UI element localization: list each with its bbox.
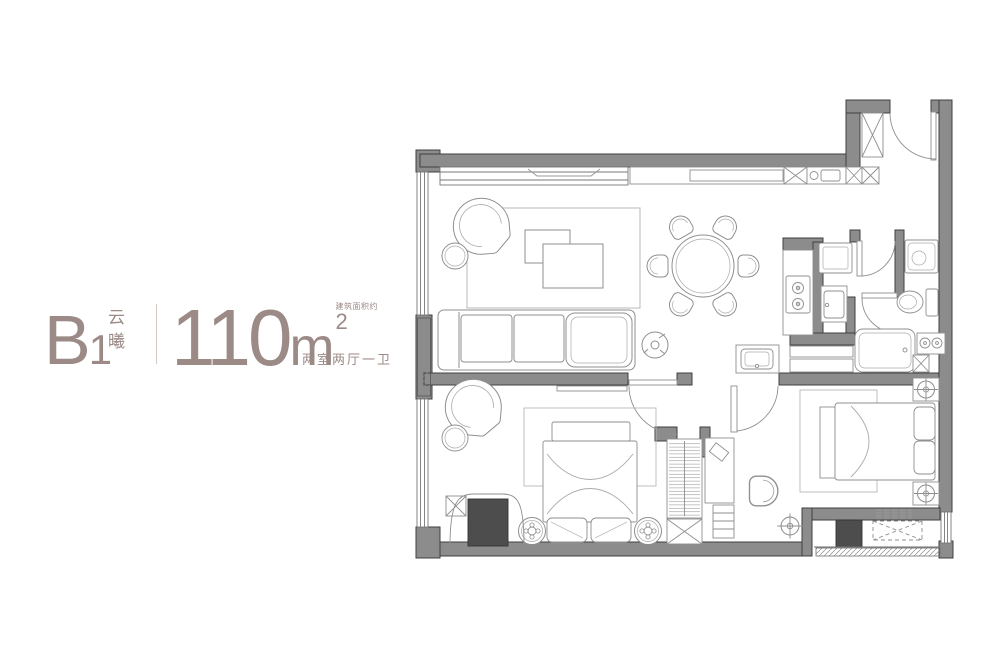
floor-lamp [642,332,668,358]
dining-area [647,212,759,320]
side-table [442,243,468,269]
living-room [438,187,668,370]
equipment-box [836,520,862,547]
corner-floor-lamp [777,513,802,538]
floor-plan [0,0,1000,666]
bed-bench [552,422,630,441]
dining-table [672,235,734,297]
sofa [438,310,635,370]
bedroom-side-table [442,425,468,451]
nightstand-round [635,518,662,545]
column-hatch [418,318,431,396]
nightstand [913,482,939,506]
pillow [914,407,935,440]
laundry-sink [917,333,945,354]
bed2-bench [820,407,835,478]
toilet [897,289,938,316]
pillow [914,441,935,474]
desk-chair [750,476,778,506]
floorplan-page: B1 云 曦 110m建筑面积约2 两室两厅一卫 [0,0,1000,666]
base-cabinet-1 [790,346,853,357]
base-cabinet-2 [790,359,853,372]
ac-unit [873,521,922,540]
balcony [814,520,940,556]
nightstand [913,378,939,402]
coffee-table-2 [543,244,603,288]
tv-console [468,499,508,546]
entry-cabinets [630,113,883,184]
hall-closet [667,439,702,544]
master-bedroom [434,368,662,546]
master-bed [543,441,637,522]
drawer-unit [713,505,734,538]
bathtub [855,329,915,372]
